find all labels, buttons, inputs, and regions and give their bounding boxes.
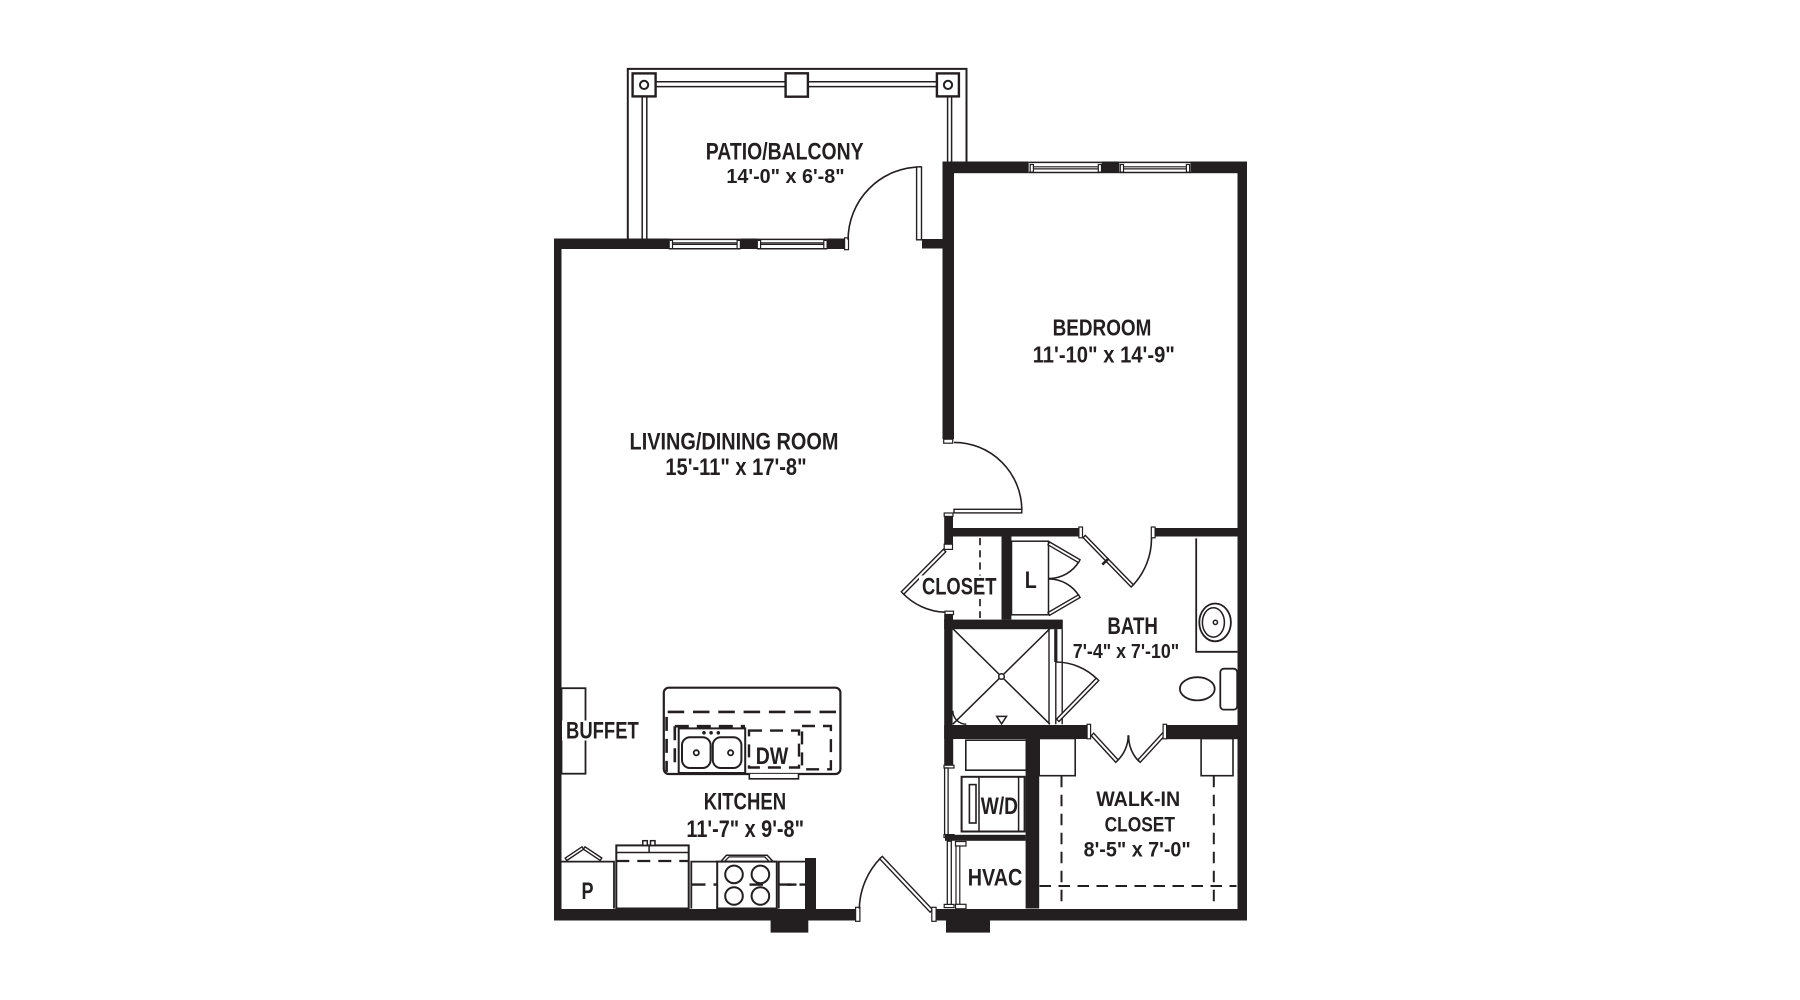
- svg-text:PATIO/BALCONY: PATIO/BALCONY: [706, 138, 864, 165]
- svg-text:WALK-IN: WALK-IN: [1096, 788, 1180, 811]
- svg-text:P: P: [582, 878, 594, 905]
- svg-text:BATH: BATH: [1107, 613, 1158, 640]
- svg-text:KITCHEN: KITCHEN: [704, 788, 786, 815]
- svg-text:HVAC: HVAC: [968, 865, 1023, 892]
- svg-text:L: L: [1025, 567, 1037, 594]
- svg-text:BUFFET: BUFFET: [566, 718, 639, 745]
- svg-text:8'-5" x 7'-0": 8'-5" x 7'-0": [1084, 839, 1191, 862]
- svg-text:15'-11" x 17'-8": 15'-11" x 17'-8": [665, 454, 806, 481]
- svg-text:BEDROOM: BEDROOM: [1053, 314, 1152, 340]
- svg-text:CLOSET: CLOSET: [922, 573, 997, 600]
- svg-text:W/D: W/D: [981, 793, 1018, 820]
- svg-text:7'-4" x 7'-10": 7'-4" x 7'-10": [1073, 641, 1179, 663]
- svg-text:14'-0" x 6'-8": 14'-0" x 6'-8": [726, 166, 844, 188]
- svg-text:DW: DW: [756, 743, 789, 770]
- svg-text:11'-7" x 9'-8": 11'-7" x 9'-8": [686, 816, 804, 843]
- svg-text:CLOSET: CLOSET: [1105, 813, 1176, 836]
- svg-text:LIVING/DINING ROOM: LIVING/DINING ROOM: [630, 428, 839, 455]
- svg-text:11'-10" x 14'-9": 11'-10" x 14'-9": [1033, 341, 1175, 367]
